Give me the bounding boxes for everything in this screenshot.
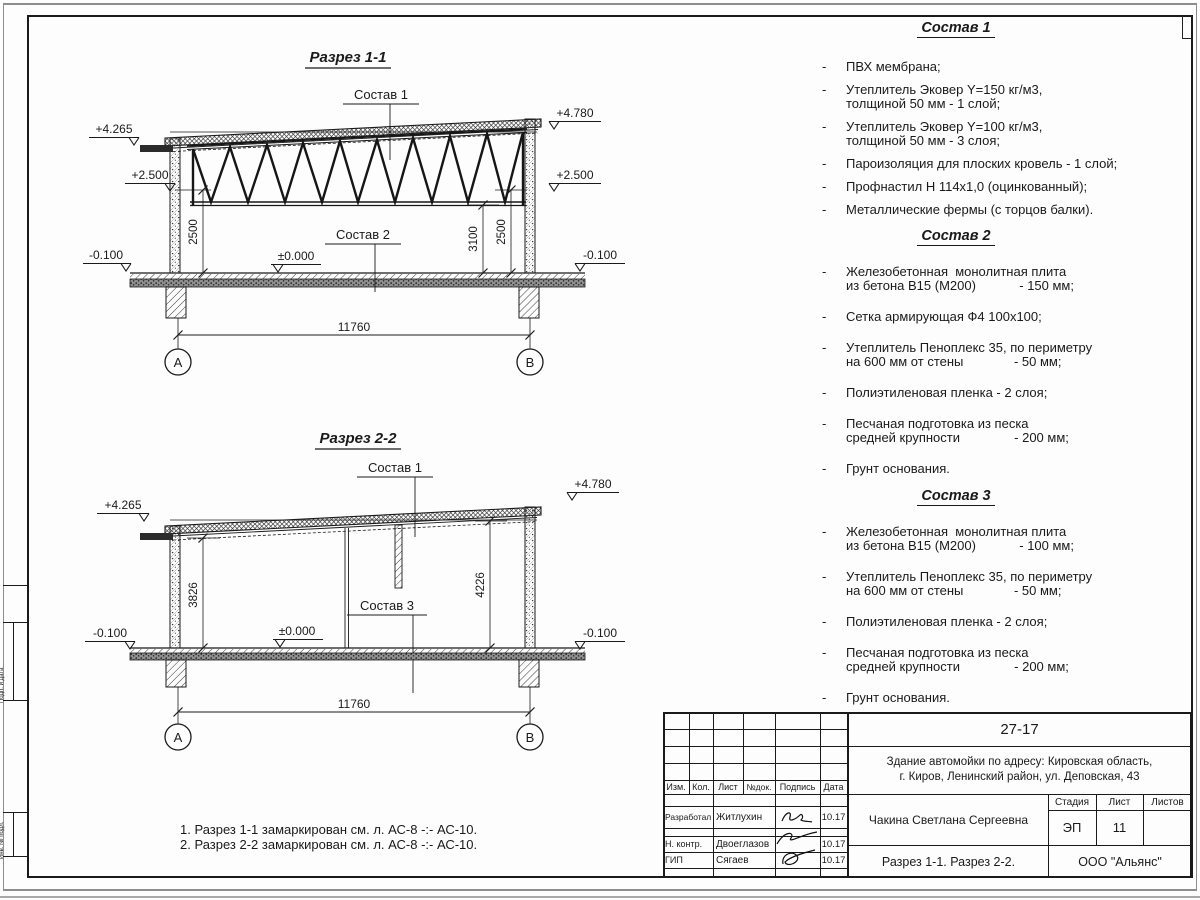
- object-address-line1: Здание автомойки по адресу: Кировская об…: [887, 755, 1153, 770]
- dim-3100-right: 3100: [467, 201, 499, 278]
- elev-mid-left: +2.500: [125, 168, 175, 191]
- row-razrabotal: Разработал: [665, 806, 713, 828]
- elev-top-right: +4.780: [567, 477, 619, 500]
- stamp-label-podp-data: Подп. и дата: [0, 668, 5, 703]
- partial-partition: [395, 525, 402, 588]
- svg-text:Разрез 1-1: Разрез 1-1: [309, 49, 386, 66]
- drawing-sheet: { "sections": { "s1": { "title": "Разрез…: [0, 0, 1200, 900]
- sheet-title: Разрез 1-1. Разрез 2-2.: [849, 845, 1048, 878]
- stamp-divider-1: [3, 585, 27, 586]
- elev-top-left: +4.265: [89, 122, 139, 145]
- svg-text:+2.500: +2.500: [556, 168, 593, 182]
- elev-base-left: -0.100: [83, 248, 131, 271]
- axis-bubbles: А В: [165, 724, 543, 750]
- dash: -: [800, 691, 846, 705]
- drawing-notes: 1. Разрез 1-1 замаркирован см. л. АС-8 -…: [180, 822, 477, 852]
- elev-top-left: +4.265: [97, 498, 149, 521]
- svg-text:3100: 3100: [468, 226, 480, 252]
- axis-a-label: А: [174, 355, 183, 370]
- author-name: Чакина Светлана Сергеевна: [849, 794, 1048, 845]
- elev-base-right: -0.100: [575, 626, 625, 649]
- svg-text:-0.100: -0.100: [89, 248, 123, 262]
- elev-top-right: +4.780: [549, 106, 601, 129]
- object-address: Здание автомойки по адресу: Кировская об…: [849, 746, 1190, 794]
- canopy-channel: [140, 533, 173, 540]
- list-item: -Полиэтиленовая пленка - 2 слоя;: [800, 386, 1195, 400]
- dim-4226-right: 4226: [475, 517, 507, 653]
- dim-3826-left: 3826: [187, 534, 220, 653]
- svg-text:11760: 11760: [338, 697, 371, 711]
- date-3: 10.17: [820, 852, 847, 868]
- dash: -: [800, 310, 846, 324]
- company-name: ООО "Альянс": [1048, 845, 1192, 878]
- canopy-channel: [140, 145, 173, 152]
- sheet-number: 11: [1096, 810, 1143, 845]
- object-address-line2: г. Киров, Ленинский район, ул. Деповская…: [899, 770, 1139, 785]
- axis-a-label: А: [174, 730, 183, 745]
- floor-slab: [130, 648, 585, 660]
- dash: -: [800, 203, 846, 217]
- outer-border-top: [3, 3, 1197, 5]
- svg-text:Состав 1: Состав 1: [368, 460, 422, 475]
- dash: -: [800, 180, 846, 194]
- outer-border-right: [1196, 3, 1197, 891]
- note-line-1: 1. Разрез 1-1 замаркирован см. л. АС-8 -…: [180, 822, 477, 837]
- axis-b-label: В: [526, 730, 535, 745]
- dash: -: [800, 341, 846, 369]
- stage-value: ЭП: [1048, 810, 1096, 845]
- note-line-2: 2. Разрез 2-2 замаркирован см. л. АС-8 -…: [180, 837, 477, 852]
- sostav1-callout: Состав 1: [343, 87, 419, 160]
- list-item: -Пароизоляция для плоских кровель - 1 сл…: [800, 157, 1195, 171]
- svg-text:Состав 3: Состав 3: [360, 598, 414, 613]
- axis-b-label: В: [526, 355, 535, 370]
- floor-slab: [130, 273, 585, 287]
- doc-number: 27-17: [849, 712, 1190, 746]
- svg-text:Состав 1: Состав 1: [354, 87, 408, 102]
- list-item: -Полиэтиленовая пленка - 2 слоя;: [800, 615, 1195, 629]
- dash: -: [800, 462, 846, 476]
- dash: -: [800, 615, 846, 629]
- list-item: -Грунт основания.: [800, 691, 1195, 705]
- svg-text:2500: 2500: [188, 219, 200, 245]
- elev-mid-right: +2.500: [549, 168, 601, 191]
- section-2-2-drawing: Разрез 2-2 Состав 1 Состав 3: [75, 425, 645, 765]
- span-dimension: 11760: [174, 318, 535, 349]
- list-item: -Песчаная подготовка из пескасредней кру…: [800, 417, 1195, 445]
- dash: -: [800, 83, 846, 111]
- stamp-inner-line2: [13, 812, 14, 856]
- outer-border-left: [3, 3, 4, 891]
- svg-text:11760: 11760: [338, 320, 371, 334]
- composition-list-3: Состав 3 -Железобетонная монолитная плит…: [800, 488, 1195, 722]
- date-2: 10.17: [820, 836, 847, 852]
- svg-text:+4.265: +4.265: [95, 122, 132, 136]
- list-item: -Песчаная подготовка из пескасредней кру…: [800, 646, 1195, 674]
- elev-zero: ±0.000: [273, 624, 323, 647]
- elev-base-right: -0.100: [575, 248, 625, 271]
- list-item: -Утеплитель Эковер Y=100 кг/м3,толщиной …: [800, 120, 1195, 148]
- section-1-1-title: Разрез 1-1: [305, 49, 391, 68]
- foundations: [166, 660, 539, 687]
- list-item: -Сетка армирующая Ф4 100х100;: [800, 310, 1195, 324]
- stamp-label-inv-podl: Инв. № подл.: [0, 822, 5, 859]
- stamp-divider-5: [3, 856, 27, 857]
- composition-2-title: Состав 2: [800, 228, 1112, 244]
- dash: -: [800, 646, 846, 674]
- svg-text:+4.780: +4.780: [574, 477, 611, 491]
- axis-bubbles: А В: [165, 349, 543, 375]
- svg-text:2500: 2500: [496, 219, 508, 245]
- name-syagaev: Сягаев: [716, 852, 775, 868]
- svg-text:Разрез 2-2: Разрез 2-2: [319, 430, 397, 447]
- dash: -: [800, 157, 846, 171]
- svg-text:±0.000: ±0.000: [279, 624, 316, 638]
- sheets-label: Листов: [1143, 794, 1192, 810]
- elev-base-left: -0.100: [85, 626, 135, 649]
- row-gip: ГИП: [665, 852, 713, 868]
- stage-label: Стадия: [1048, 794, 1096, 810]
- sheets-total: [1143, 810, 1192, 845]
- col-izm: Изм.: [663, 780, 689, 794]
- frame-top: [27, 15, 1193, 17]
- signature-dvoeglazov-syagaev: [773, 828, 823, 870]
- title-block: Изм. Кол. Лист №док. Подпись Дата Разраб…: [663, 712, 1192, 878]
- col-kol: Кол.: [689, 780, 713, 794]
- list-item: -Металлические фермы (с торцов балки).: [800, 203, 1195, 217]
- name-dvoeglazov: Двоеглазов: [716, 836, 775, 852]
- stamp-inner-line: [13, 622, 14, 700]
- roof-assembly: [165, 507, 541, 540]
- svg-text:4226: 4226: [475, 572, 487, 598]
- list-item: -Утеплитель Пеноплекс 35, по периметруна…: [800, 570, 1195, 598]
- col-list: Лист: [713, 780, 743, 794]
- svg-text:+4.265: +4.265: [104, 498, 141, 512]
- stamp-divider-2: [3, 622, 27, 623]
- name-zhitlukhin: Житлухин: [716, 806, 775, 828]
- frame-left: [27, 15, 29, 878]
- list-item: -Утеплитель Пеноплекс 35, по периметруна…: [800, 341, 1195, 369]
- svg-text:Состав 2: Состав 2: [336, 227, 390, 242]
- dash: -: [800, 386, 846, 400]
- list-item: -Грунт основания.: [800, 462, 1195, 476]
- col-podpis: Подпись: [775, 780, 820, 794]
- date-1: 10.17: [820, 806, 847, 828]
- svg-text:-0.100: -0.100: [583, 248, 617, 262]
- foundations: [166, 287, 539, 318]
- composition-3-title: Состав 3: [800, 488, 1112, 504]
- elevation-marks: +4.265 +4.780 -0.100 -0.100 ±0.000: [85, 477, 625, 649]
- stamp-divider-3: [3, 700, 27, 701]
- svg-text:-0.100: -0.100: [583, 626, 617, 640]
- svg-text:-0.100: -0.100: [93, 626, 127, 640]
- svg-text:+4.780: +4.780: [556, 106, 593, 120]
- dash: -: [800, 570, 846, 598]
- sheet-label: Лист: [1096, 794, 1143, 810]
- svg-text:3826: 3826: [188, 582, 200, 608]
- list-item: -Железобетонная монолитная плитаиз бетон…: [800, 525, 1195, 553]
- span-dimension: 11760: [174, 687, 535, 724]
- section-2-2-title: Разрез 2-2: [315, 430, 401, 449]
- dash: -: [800, 60, 846, 74]
- dash: -: [800, 417, 846, 445]
- composition-1-title: Состав 1: [800, 20, 1112, 36]
- sostav3-callout: Состав 3: [347, 598, 427, 693]
- composition-list-2: Состав 2 -Железобетонная монолитная плит…: [800, 228, 1195, 493]
- composition-list-1: Состав 1 -ПВХ мембрана; -Утеплитель Эков…: [800, 20, 1195, 226]
- elev-zero: ±0.000: [271, 249, 321, 272]
- list-item: -ПВХ мембрана;: [800, 60, 1195, 74]
- signature-zhitlukhin: [776, 807, 820, 827]
- sheet-edge-strip: [0, 896, 1200, 898]
- list-item: -Профнастил Н 114х1,0 (оцинкованный);: [800, 180, 1195, 194]
- section-1-1-drawing: Разрез 1-1 Состав 1: [75, 42, 645, 387]
- stamp-divider-4: [3, 812, 27, 813]
- outer-border-bottom: [3, 889, 1197, 891]
- list-item: -Железобетонная монолитная плитаиз бетон…: [800, 265, 1195, 293]
- dash: -: [800, 525, 846, 553]
- dash: -: [800, 265, 846, 293]
- row-nkontr: Н. контр.: [665, 836, 713, 852]
- svg-text:±0.000: ±0.000: [278, 249, 315, 263]
- col-data: Дата: [820, 780, 847, 794]
- partitions: [345, 525, 402, 648]
- list-item: -Утеплитель Эковер Y=150 кг/м3,толщиной …: [800, 83, 1195, 111]
- dash: -: [800, 120, 846, 148]
- col-ndok: №док.: [743, 780, 775, 794]
- svg-text:+2.500: +2.500: [131, 168, 168, 182]
